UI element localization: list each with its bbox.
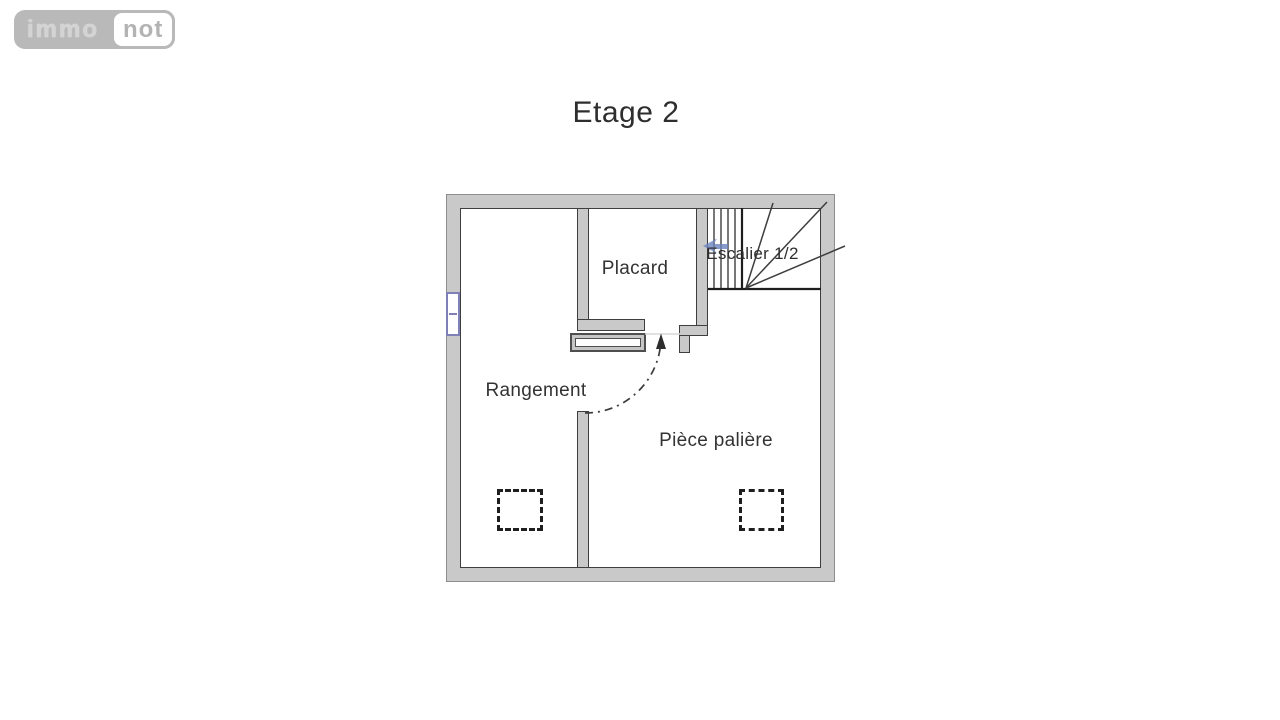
- wall-placard-bottom: [577, 319, 645, 331]
- doorway-wall-segment: [570, 333, 646, 352]
- window-mullion: [449, 313, 457, 315]
- dashed-opening-marker-left: [497, 489, 543, 531]
- wall-rangement-divider: [577, 411, 589, 568]
- dashed-opening-marker-right: [739, 489, 784, 531]
- logo-immo-text: immo: [14, 10, 111, 49]
- floorplan-page: immo not Etage 2: [0, 0, 1280, 720]
- room-label-rangement: Rangement: [476, 380, 596, 402]
- wall-placard-right: [696, 208, 708, 326]
- room-label-placard: Placard: [585, 258, 685, 280]
- room-label-escalier: Escalier 1/2: [695, 244, 810, 264]
- floor-title: Etage 2: [496, 96, 756, 130]
- window-symbol: [446, 292, 460, 336]
- room-label-piece-paliere: Pièce palière: [641, 430, 791, 452]
- wall-door-jamb-vertical: [679, 335, 690, 353]
- logo-not-text: not: [111, 10, 175, 49]
- immonot-logo: immo not: [14, 10, 175, 49]
